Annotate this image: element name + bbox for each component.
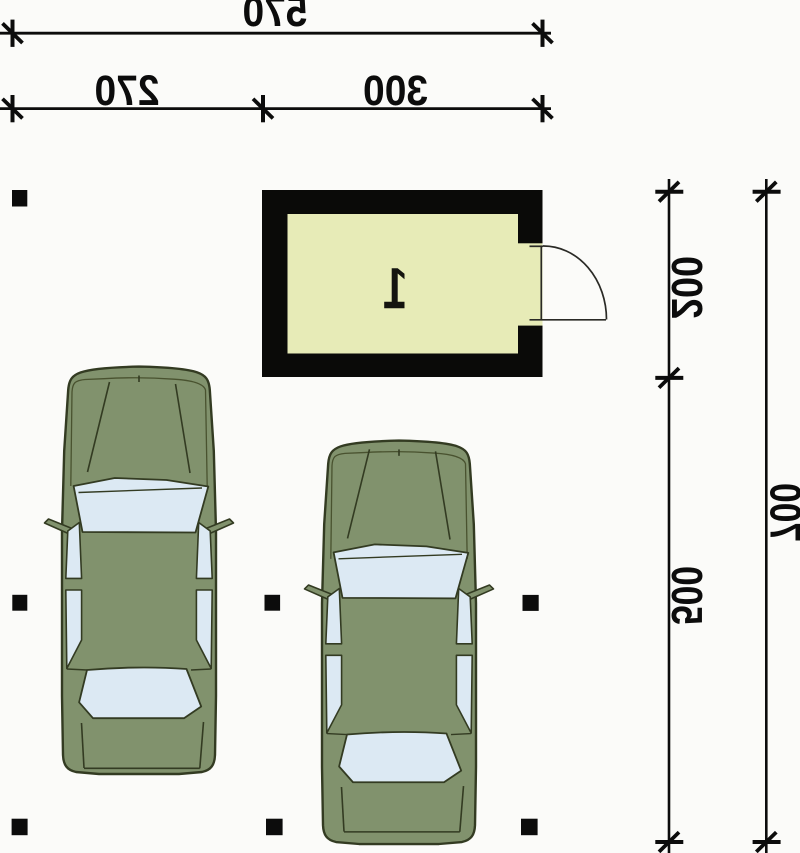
svg-text:700: 700 [761,483,800,542]
svg-text:200: 200 [662,256,711,319]
svg-text:270: 270 [95,67,160,115]
svg-text:570: 570 [243,0,308,36]
svg-text:500: 500 [662,566,711,625]
svg-text:300: 300 [363,67,428,115]
